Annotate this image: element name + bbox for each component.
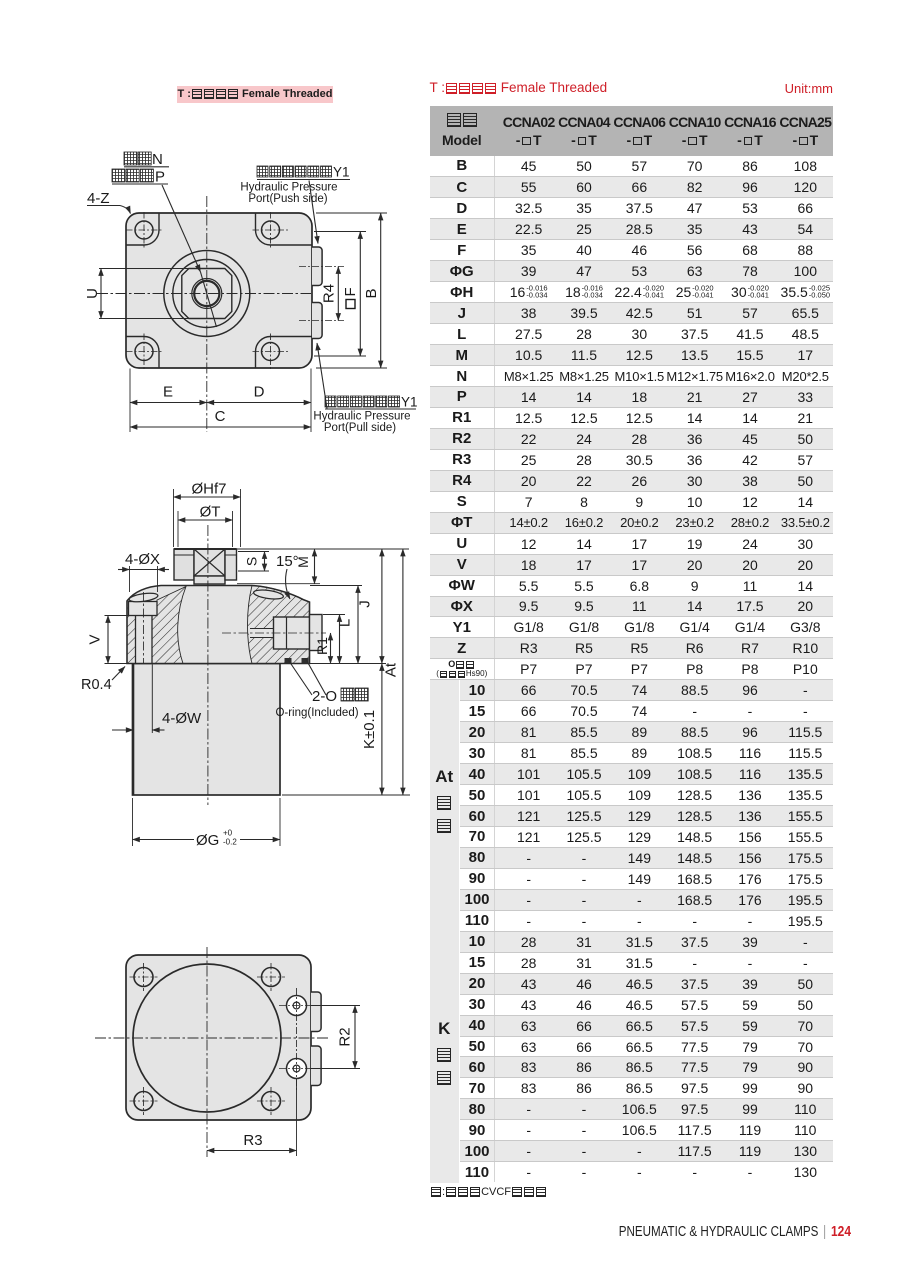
svg-text:R2: R2 [337, 1027, 354, 1046]
svg-text:E: E [163, 384, 173, 401]
svg-text:J: J [357, 600, 374, 608]
svg-text:2-O: 2-O [312, 688, 337, 705]
svg-text:F: F [342, 287, 359, 296]
svg-text:D: D [254, 384, 265, 401]
svg-text:R1: R1 [314, 637, 330, 655]
svg-text:U: U [84, 288, 101, 299]
svg-text:P: P [155, 169, 165, 186]
svg-text:R3: R3 [243, 1132, 262, 1149]
svg-text:+0: +0 [223, 829, 233, 838]
svg-text:Hydraulic Pressure: Hydraulic Pressure [240, 182, 337, 194]
svg-text:R4: R4 [321, 284, 338, 303]
svg-text:At: At [383, 662, 400, 677]
svg-text:4-ØW: 4-ØW [162, 710, 202, 727]
svg-text:Y1: Y1 [333, 165, 350, 180]
svg-text:N: N [152, 151, 163, 168]
svg-text:ØG: ØG [196, 832, 219, 849]
svg-text:4-ØX: 4-ØX [125, 551, 160, 568]
svg-text:ØT: ØT [200, 504, 221, 521]
svg-text:S: S [244, 557, 260, 566]
svg-text:M: M [295, 556, 311, 568]
svg-text:-0.2: -0.2 [223, 838, 237, 847]
svg-text:Port(Push side): Port(Push side) [248, 193, 327, 205]
svg-text:ØHf7: ØHf7 [191, 481, 226, 498]
svg-text:L: L [337, 619, 354, 627]
svg-text:B: B [363, 288, 380, 298]
svg-text:Port(Pull side): Port(Pull side) [324, 422, 396, 434]
svg-text:V: V [87, 634, 104, 644]
svg-text:O-ring(Included): O-ring(Included) [275, 707, 358, 719]
svg-text:C: C [215, 408, 226, 425]
svg-text:Y1: Y1 [401, 395, 418, 410]
svg-text:Hydraulic Pressure: Hydraulic Pressure [313, 411, 410, 423]
svg-text:K±0.1: K±0.1 [361, 710, 378, 749]
svg-text:4-Z: 4-Z [87, 190, 110, 207]
svg-text:R0.4: R0.4 [81, 677, 112, 693]
